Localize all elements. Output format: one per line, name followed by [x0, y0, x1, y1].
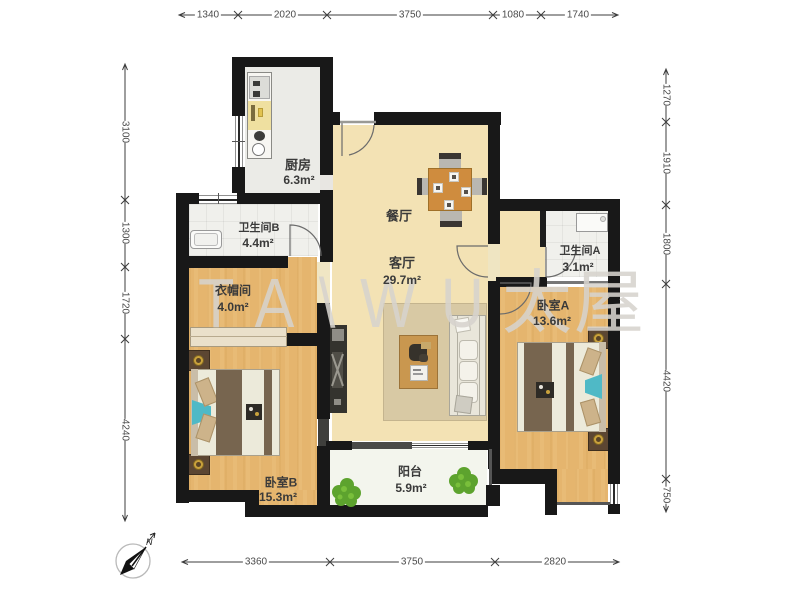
- svg-text:N: N: [146, 537, 153, 547]
